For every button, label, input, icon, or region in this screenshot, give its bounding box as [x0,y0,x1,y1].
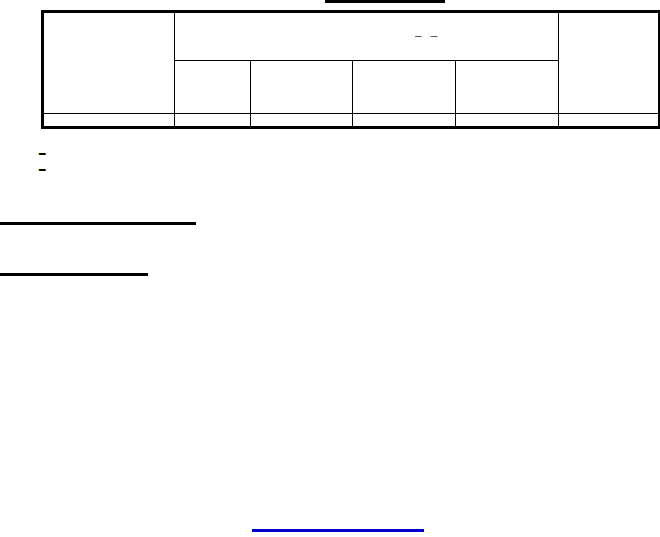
table-body-cell [559,114,660,128]
table-body-cell [456,114,559,128]
section-heading-underline [0,222,196,225]
table-body-cell [353,114,456,128]
table-body-row [43,114,660,128]
title-underline [325,0,445,3]
table-stub-header-cell [43,12,175,114]
document-page: – – – – [0,0,660,537]
header-table: – – [41,10,660,129]
table-body-cell [251,114,353,128]
table-body-cell [43,114,175,128]
table-subheader-cell [251,61,353,114]
table-body-cell [175,114,251,128]
subsection-heading-underline [0,273,148,276]
table-group-header-cell: – – [175,12,559,61]
footnote-dash-marker: – [38,146,50,160]
table-right-header-cell [559,12,660,114]
group-header-label: – – [415,27,440,43]
table-subheader-cell [456,61,559,114]
table-subheader-cell [175,61,251,114]
footnote-dash-marker: – [38,162,50,176]
table-group-header-row: – – [43,12,660,61]
table-subheader-cell [353,61,456,114]
hyperlink-underline[interactable] [252,529,424,532]
